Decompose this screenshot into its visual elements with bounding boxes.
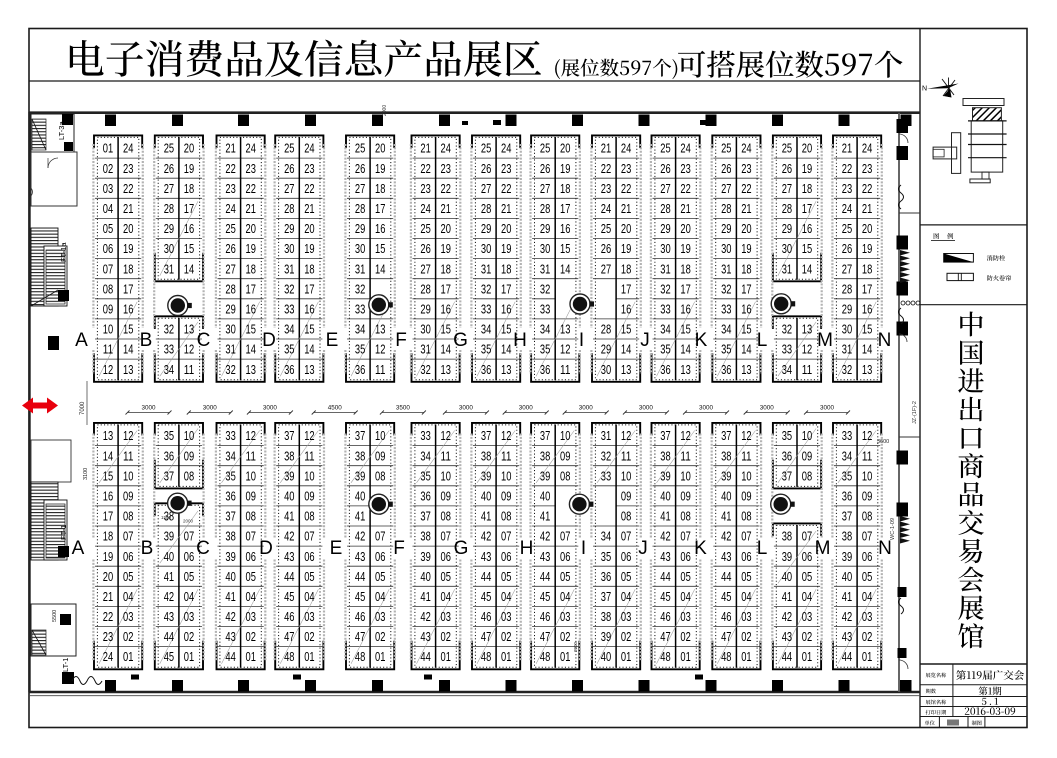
svg-text:20: 20	[123, 221, 133, 236]
svg-text:04: 04	[304, 589, 314, 604]
svg-text:04: 04	[375, 589, 385, 604]
svg-text:09: 09	[103, 302, 113, 317]
svg-text:12: 12	[304, 428, 314, 443]
svg-text:26: 26	[782, 161, 792, 176]
svg-text:03: 03	[375, 609, 385, 624]
svg-text:36: 36	[721, 362, 731, 377]
svg-text:42: 42	[284, 529, 294, 544]
svg-text:19: 19	[123, 241, 133, 256]
svg-text:34: 34	[481, 322, 491, 337]
svg-text:41: 41	[420, 589, 430, 604]
svg-text:09: 09	[802, 448, 812, 463]
svg-text:37: 37	[481, 428, 491, 443]
svg-text:LT-3a: LT-3a	[57, 121, 66, 140]
svg-text:07: 07	[680, 529, 690, 544]
svg-text:45: 45	[481, 589, 491, 604]
svg-text:43: 43	[782, 629, 792, 644]
svg-text:03: 03	[862, 609, 872, 624]
svg-text:FT-1a: FT-1a	[59, 242, 68, 262]
svg-text:17: 17	[103, 509, 113, 524]
svg-text:44: 44	[355, 569, 365, 584]
svg-text:16: 16	[862, 302, 872, 317]
svg-text:33: 33	[355, 302, 365, 317]
svg-text:37: 37	[540, 428, 550, 443]
svg-text:40: 40	[721, 489, 731, 504]
svg-text:44: 44	[284, 569, 294, 584]
svg-text:24: 24	[842, 201, 852, 216]
svg-text:41: 41	[284, 509, 294, 524]
svg-text:09: 09	[680, 489, 690, 504]
svg-text:06: 06	[741, 549, 751, 564]
svg-text:17: 17	[501, 281, 511, 296]
svg-text:05: 05	[680, 569, 690, 584]
svg-text:14: 14	[441, 342, 451, 357]
svg-text:35: 35	[660, 342, 670, 357]
svg-text:2000: 2000	[573, 641, 578, 652]
svg-text:30: 30	[420, 322, 430, 337]
svg-text:40: 40	[660, 489, 670, 504]
svg-text:23: 23	[741, 161, 751, 176]
svg-text:18: 18	[123, 261, 133, 276]
svg-text:31: 31	[782, 261, 792, 276]
svg-text:02: 02	[246, 629, 256, 644]
svg-text:39: 39	[601, 629, 611, 644]
svg-text:2000: 2000	[382, 105, 388, 116]
svg-text:13: 13	[621, 362, 631, 377]
svg-text:11: 11	[441, 448, 451, 463]
svg-text:26: 26	[481, 161, 491, 176]
svg-text:13: 13	[501, 362, 511, 377]
svg-text:38: 38	[225, 529, 235, 544]
svg-text:JZ-(1F)-2: JZ-(1F)-2	[912, 401, 918, 424]
svg-text:20: 20	[184, 141, 194, 156]
svg-text:02: 02	[501, 629, 511, 644]
svg-text:29: 29	[782, 221, 792, 236]
svg-text:33: 33	[225, 428, 235, 443]
svg-text:15: 15	[501, 322, 511, 337]
svg-text:29: 29	[842, 302, 852, 317]
svg-text:18: 18	[741, 261, 751, 276]
svg-text:39: 39	[164, 529, 174, 544]
svg-text:3000: 3000	[459, 405, 474, 412]
svg-text:13: 13	[862, 362, 872, 377]
svg-text:17: 17	[304, 281, 314, 296]
svg-text:23: 23	[680, 161, 690, 176]
svg-text:29: 29	[355, 221, 365, 236]
svg-text:17: 17	[680, 281, 690, 296]
svg-text:18: 18	[441, 261, 451, 276]
svg-text:42: 42	[225, 609, 235, 624]
svg-text:A: A	[75, 330, 88, 351]
svg-text:03: 03	[246, 609, 256, 624]
svg-text:44: 44	[842, 649, 852, 664]
svg-text:38: 38	[420, 529, 430, 544]
svg-text:16: 16	[802, 221, 812, 236]
svg-text:41: 41	[481, 509, 491, 524]
svg-text:20: 20	[375, 141, 385, 156]
svg-text:29: 29	[601, 342, 611, 357]
svg-text:36: 36	[540, 362, 550, 377]
svg-text:11: 11	[184, 362, 194, 377]
svg-text:28: 28	[721, 201, 731, 216]
svg-text:3000: 3000	[639, 405, 654, 412]
svg-text:48: 48	[284, 649, 294, 664]
svg-text:29: 29	[284, 221, 294, 236]
svg-text:28: 28	[481, 201, 491, 216]
svg-text:B: B	[141, 538, 154, 559]
svg-text:34: 34	[721, 322, 731, 337]
svg-text:38: 38	[660, 448, 670, 463]
svg-text:22: 22	[246, 181, 256, 196]
svg-text:15: 15	[184, 241, 194, 256]
svg-text:3000: 3000	[760, 405, 775, 412]
svg-text:46: 46	[660, 609, 670, 624]
svg-text:10: 10	[621, 468, 631, 483]
svg-text:01: 01	[680, 649, 690, 664]
svg-text:14: 14	[375, 261, 385, 276]
svg-text:14: 14	[501, 342, 511, 357]
svg-text:25: 25	[355, 141, 365, 156]
svg-text:10: 10	[103, 322, 113, 337]
svg-text:26: 26	[721, 161, 731, 176]
svg-text:34: 34	[164, 362, 174, 377]
svg-text:12: 12	[862, 428, 872, 443]
svg-text:35: 35	[420, 468, 430, 483]
svg-text:23: 23	[225, 181, 235, 196]
svg-text:05: 05	[802, 569, 812, 584]
svg-text:05: 05	[375, 569, 385, 584]
svg-text:35: 35	[842, 468, 852, 483]
svg-text:25: 25	[420, 221, 430, 236]
svg-text:40: 40	[225, 569, 235, 584]
svg-text:18: 18	[680, 261, 690, 276]
svg-text:4500: 4500	[328, 405, 343, 412]
svg-text:07: 07	[184, 529, 194, 544]
svg-text:37: 37	[842, 509, 852, 524]
svg-text:01: 01	[184, 649, 194, 664]
svg-text:D: D	[262, 330, 276, 351]
svg-text:28: 28	[540, 201, 550, 216]
svg-text:17: 17	[246, 281, 256, 296]
svg-text:18: 18	[304, 261, 314, 276]
svg-text:M: M	[817, 330, 833, 351]
svg-text:10: 10	[184, 428, 194, 443]
svg-text:21: 21	[123, 201, 133, 216]
svg-text:12: 12	[184, 342, 194, 357]
svg-text:17: 17	[862, 281, 872, 296]
svg-text:L: L	[757, 330, 768, 351]
svg-text:39: 39	[284, 468, 294, 483]
svg-text:15: 15	[304, 322, 314, 337]
svg-text:47: 47	[540, 629, 550, 644]
svg-text:02: 02	[184, 629, 194, 644]
svg-text:46: 46	[721, 609, 731, 624]
svg-text:23: 23	[601, 181, 611, 196]
svg-text:38: 38	[284, 448, 294, 463]
svg-text:27: 27	[481, 181, 491, 196]
svg-text:24: 24	[441, 141, 451, 156]
svg-text:09: 09	[621, 489, 631, 504]
svg-text:06: 06	[680, 549, 690, 564]
svg-text:36: 36	[284, 362, 294, 377]
svg-text:05: 05	[560, 569, 570, 584]
svg-text:08: 08	[375, 468, 385, 483]
svg-text:15: 15	[802, 241, 812, 256]
svg-text:07: 07	[304, 529, 314, 544]
svg-text:39: 39	[540, 468, 550, 483]
svg-text:22: 22	[680, 181, 690, 196]
svg-text:22: 22	[441, 181, 451, 196]
svg-text:3000: 3000	[519, 405, 534, 412]
svg-text:23: 23	[123, 161, 133, 176]
svg-text:12: 12	[246, 428, 256, 443]
svg-text:43: 43	[284, 549, 294, 564]
svg-text:08: 08	[680, 509, 690, 524]
svg-text:15: 15	[621, 322, 631, 337]
svg-text:37: 37	[721, 428, 731, 443]
svg-text:30: 30	[721, 241, 731, 256]
svg-text:38: 38	[355, 448, 365, 463]
svg-text:16: 16	[741, 302, 751, 317]
svg-text:43: 43	[842, 629, 852, 644]
svg-text:06: 06	[560, 549, 570, 564]
svg-text:06: 06	[103, 241, 113, 256]
svg-text:25: 25	[660, 141, 670, 156]
svg-text:19: 19	[862, 241, 872, 256]
svg-text:25: 25	[721, 141, 731, 156]
svg-text:14: 14	[560, 261, 570, 276]
svg-text:08: 08	[123, 509, 133, 524]
svg-text:41: 41	[782, 589, 792, 604]
svg-text:19: 19	[560, 161, 570, 176]
svg-text:08: 08	[103, 281, 113, 296]
svg-text:04: 04	[501, 589, 511, 604]
svg-text:27: 27	[225, 261, 235, 276]
svg-text:09: 09	[304, 489, 314, 504]
svg-text:24: 24	[225, 201, 235, 216]
svg-text:22: 22	[103, 609, 113, 624]
svg-text:18: 18	[184, 181, 194, 196]
svg-text:02: 02	[103, 161, 113, 176]
svg-text:C: C	[197, 330, 211, 351]
svg-text:27: 27	[284, 181, 294, 196]
svg-text:05: 05	[246, 569, 256, 584]
svg-text:17: 17	[184, 201, 194, 216]
svg-text:15: 15	[862, 322, 872, 337]
svg-text:10: 10	[304, 468, 314, 483]
svg-text:07: 07	[246, 529, 256, 544]
svg-text:1500: 1500	[161, 515, 172, 520]
svg-text:33: 33	[721, 302, 731, 317]
svg-text:L: L	[757, 538, 768, 559]
svg-text:12: 12	[375, 342, 385, 357]
svg-text:30: 30	[164, 241, 174, 256]
svg-text:24: 24	[103, 649, 113, 664]
svg-text:42: 42	[540, 529, 550, 544]
svg-text:46: 46	[540, 609, 550, 624]
svg-text:11: 11	[246, 448, 256, 463]
svg-text:40: 40	[782, 569, 792, 584]
svg-text:01: 01	[862, 649, 872, 664]
svg-text:10: 10	[862, 468, 872, 483]
svg-text:40: 40	[481, 489, 491, 504]
svg-text:13: 13	[741, 362, 751, 377]
svg-text:23: 23	[621, 161, 631, 176]
svg-text:37: 37	[601, 589, 611, 604]
svg-text:21: 21	[862, 201, 872, 216]
svg-text:09: 09	[375, 448, 385, 463]
svg-text:22: 22	[304, 181, 314, 196]
svg-text:04: 04	[862, 589, 872, 604]
svg-text:19: 19	[802, 161, 812, 176]
svg-text:16: 16	[123, 302, 133, 317]
svg-text:07: 07	[802, 529, 812, 544]
svg-text:28: 28	[601, 322, 611, 337]
svg-text:45: 45	[540, 589, 550, 604]
svg-text:22: 22	[741, 181, 751, 196]
svg-text:15: 15	[741, 322, 751, 337]
svg-text:08: 08	[441, 509, 451, 524]
svg-text:13: 13	[802, 322, 812, 337]
svg-text:38: 38	[782, 529, 792, 544]
svg-text:13: 13	[375, 322, 385, 337]
svg-text:06: 06	[501, 549, 511, 564]
svg-text:44: 44	[225, 649, 235, 664]
svg-text:11: 11	[560, 362, 570, 377]
svg-text:04: 04	[560, 589, 570, 604]
svg-text:32: 32	[355, 281, 365, 296]
svg-text:21: 21	[601, 141, 611, 156]
svg-text:45: 45	[355, 589, 365, 604]
svg-text:29: 29	[225, 302, 235, 317]
svg-text:47: 47	[481, 629, 491, 644]
svg-text:22: 22	[225, 161, 235, 176]
svg-text:25: 25	[540, 141, 550, 156]
svg-text:I: I	[581, 538, 586, 559]
svg-text:01: 01	[304, 649, 314, 664]
svg-text:20: 20	[741, 221, 751, 236]
svg-text:J: J	[638, 538, 648, 559]
svg-text:K: K	[695, 330, 708, 351]
svg-text:37: 37	[660, 428, 670, 443]
svg-text:18: 18	[375, 181, 385, 196]
svg-text:27: 27	[420, 261, 430, 276]
svg-text:21: 21	[103, 589, 113, 604]
svg-text:40: 40	[355, 489, 365, 504]
svg-text:04: 04	[103, 201, 113, 216]
svg-text:30: 30	[540, 241, 550, 256]
svg-text:27: 27	[660, 181, 670, 196]
svg-text:16: 16	[184, 221, 194, 236]
svg-text:24: 24	[862, 141, 872, 156]
svg-text:25: 25	[164, 141, 174, 156]
svg-text:32: 32	[842, 362, 852, 377]
svg-text:02: 02	[304, 629, 314, 644]
svg-text:27: 27	[842, 261, 852, 276]
svg-text:08: 08	[862, 509, 872, 524]
svg-text:23: 23	[304, 161, 314, 176]
svg-text:02: 02	[123, 629, 133, 644]
svg-text:10: 10	[501, 468, 511, 483]
svg-text:24: 24	[246, 141, 256, 156]
svg-text:17: 17	[123, 281, 133, 296]
svg-text:39: 39	[660, 468, 670, 483]
svg-text:06: 06	[862, 549, 872, 564]
svg-text:28: 28	[164, 201, 174, 216]
svg-text:43: 43	[660, 549, 670, 564]
svg-text:13: 13	[304, 362, 314, 377]
svg-text:FT-1: FT-1	[59, 525, 68, 540]
svg-text:13: 13	[184, 322, 194, 337]
svg-text:25: 25	[601, 221, 611, 236]
svg-text:15: 15	[680, 322, 690, 337]
svg-text:08: 08	[621, 509, 631, 524]
svg-text:03: 03	[680, 609, 690, 624]
svg-text:7000: 7000	[80, 401, 86, 415]
svg-text:42: 42	[782, 609, 792, 624]
svg-text:22: 22	[420, 161, 430, 176]
svg-text:06: 06	[246, 549, 256, 564]
svg-text:09: 09	[441, 489, 451, 504]
svg-text:3000: 3000	[579, 405, 594, 412]
svg-text:34: 34	[540, 322, 550, 337]
svg-text:26: 26	[842, 241, 852, 256]
svg-text:18: 18	[802, 181, 812, 196]
svg-text:26: 26	[225, 241, 235, 256]
svg-text:25: 25	[284, 141, 294, 156]
svg-text:01: 01	[375, 649, 385, 664]
svg-text:19: 19	[741, 241, 751, 256]
svg-text:31: 31	[355, 261, 365, 276]
svg-text:36: 36	[164, 448, 174, 463]
svg-text:16: 16	[375, 221, 385, 236]
svg-text:26: 26	[660, 161, 670, 176]
svg-text:18: 18	[621, 261, 631, 276]
svg-text:17: 17	[560, 201, 570, 216]
svg-text:11: 11	[103, 342, 113, 357]
svg-text:32: 32	[420, 362, 430, 377]
svg-text:36: 36	[782, 448, 792, 463]
svg-text:36: 36	[225, 489, 235, 504]
svg-text:29: 29	[164, 221, 174, 236]
svg-text:16: 16	[246, 302, 256, 317]
svg-text:13: 13	[560, 322, 570, 337]
svg-text:08: 08	[741, 509, 751, 524]
svg-text:01: 01	[741, 649, 751, 664]
svg-text:32: 32	[164, 322, 174, 337]
svg-text:14: 14	[304, 342, 314, 357]
svg-text:18: 18	[862, 261, 872, 276]
svg-text:04: 04	[246, 589, 256, 604]
svg-text:24: 24	[304, 141, 314, 156]
svg-text:36: 36	[601, 569, 611, 584]
svg-text:21: 21	[621, 201, 631, 216]
svg-text:20: 20	[501, 221, 511, 236]
svg-text:A: A	[72, 538, 85, 559]
svg-text:23: 23	[246, 161, 256, 176]
svg-text:47: 47	[660, 629, 670, 644]
svg-text:28: 28	[660, 201, 670, 216]
svg-text:23: 23	[862, 161, 872, 176]
svg-text:07: 07	[862, 529, 872, 544]
svg-text:09: 09	[560, 448, 570, 463]
svg-text:38: 38	[601, 609, 611, 624]
svg-text:31: 31	[164, 261, 174, 276]
svg-text:16: 16	[501, 302, 511, 317]
svg-text:38: 38	[540, 448, 550, 463]
svg-text:22: 22	[842, 161, 852, 176]
svg-text:37: 37	[164, 468, 174, 483]
